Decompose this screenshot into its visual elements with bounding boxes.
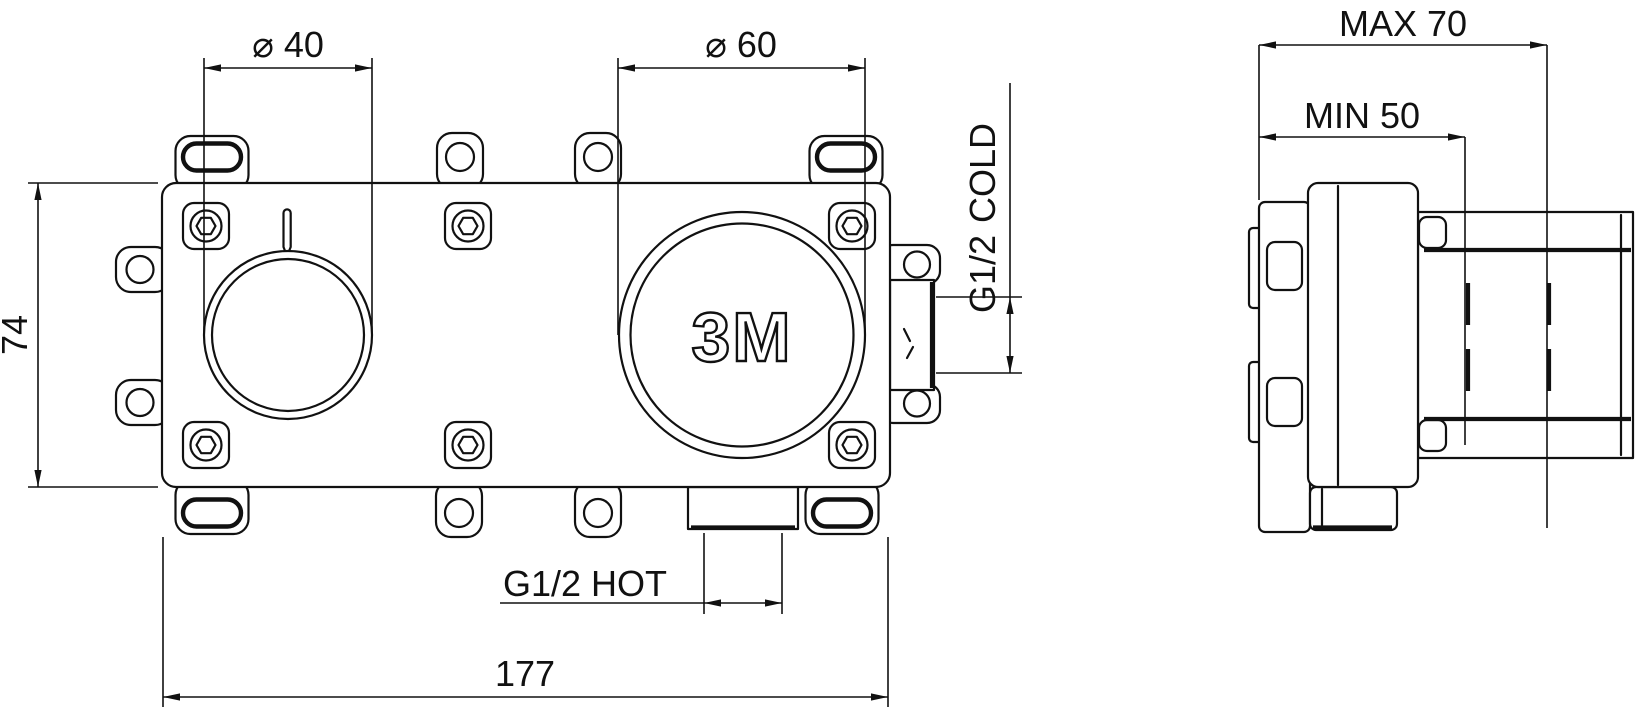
dim-height-74: 74: [0, 183, 158, 487]
dim-hot-port: G1/2 HOT: [500, 533, 782, 614]
cold-inlet-port: [890, 280, 934, 390]
screw-boss-bottom-middle: [445, 422, 491, 468]
screw-boss-top-middle: [445, 203, 491, 249]
hot-inlet-port: [688, 487, 798, 529]
plate-boss-lower: [1267, 378, 1302, 426]
dim-height-74-label: 74: [0, 315, 35, 355]
side-view: [1249, 183, 1633, 532]
cylinder-lip-upper: [1419, 217, 1446, 248]
cold-port-thread-label: G1/2: [962, 235, 1003, 313]
index-pin-mark: [284, 209, 291, 256]
hot-port-thread-label: G1/2: [503, 563, 581, 604]
mounting-hole-tab-bottom-2: [575, 481, 621, 537]
dim-diameter-60-label: ⌀ 60: [705, 24, 777, 65]
cold-port-label: COLD: [962, 123, 1003, 223]
dim-min-depth: MIN 50: [1259, 95, 1465, 141]
dim-diameter-40-label: ⌀ 40: [252, 24, 324, 65]
mounting-hole-tab-bottom-1: [436, 481, 482, 537]
brand-logo: 3M: [691, 298, 792, 376]
plate-boss-upper: [1267, 242, 1302, 290]
body-block-side: [1308, 183, 1418, 487]
screw-boss-top-left: [183, 203, 229, 249]
mounting-hole-tab-top-1: [437, 133, 483, 189]
dim-max-depth-label: MAX 70: [1339, 3, 1467, 44]
dim-min-depth-label: MIN 50: [1304, 95, 1420, 136]
cylinder-lip-lower: [1419, 420, 1446, 451]
dim-cold-port: G1/2 COLD: [936, 83, 1022, 373]
front-view: 3M: [116, 133, 940, 537]
screw-boss-bottom-right: [829, 422, 875, 468]
dim-width-177-label: 177: [495, 653, 555, 694]
dim-max-depth: MAX 70: [1259, 3, 1547, 49]
screw-boss-bottom-left: [183, 422, 229, 468]
mounting-hole-tab-top-2: [575, 133, 621, 189]
bore-40-inner: [212, 259, 364, 411]
screw-boss-top-right: [829, 203, 875, 249]
technical-drawing: 3M ⌀ 40 ⌀ 60 74: [0, 0, 1650, 728]
hot-port-label: HOT: [591, 563, 667, 604]
technical-drawing-page: 3M ⌀ 40 ⌀ 60 74: [0, 0, 1650, 728]
